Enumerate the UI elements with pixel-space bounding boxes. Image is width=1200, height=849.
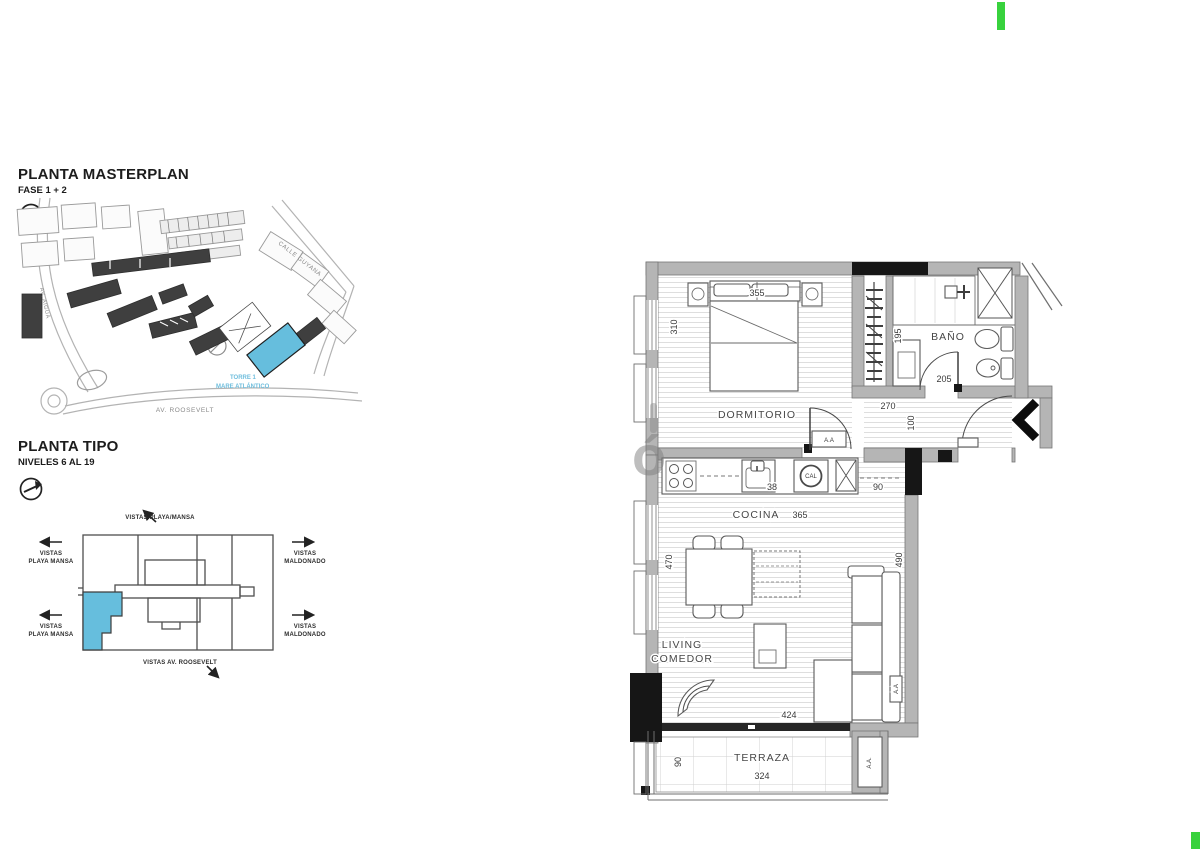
dim-bedroom-width: 355 bbox=[749, 288, 764, 298]
label-terrace: TERRAZA bbox=[734, 752, 790, 764]
terrace-slider bbox=[662, 723, 850, 731]
dim-living-left: 470 bbox=[664, 554, 674, 569]
masterplan-title: PLANTA MASTERPLAN bbox=[18, 166, 189, 183]
masterplan-map: CALLE GUYANA AV. AIGUÁ AV. ROOSEVELT TOR… bbox=[10, 196, 370, 428]
label-living-2: COMEDOR bbox=[651, 653, 713, 665]
view-label-left1a: VISTAS bbox=[40, 551, 62, 557]
closet bbox=[865, 282, 883, 382]
north-compass-icon-2 bbox=[18, 476, 44, 502]
keyplan-diagram: VISTAS PLAYA/MANSA VISTAS PLAYA MANSA VI… bbox=[10, 500, 380, 690]
dim-closet: 195 bbox=[893, 328, 903, 343]
ac-tag-bedroom: A.A bbox=[824, 438, 834, 444]
view-label-right2a: VISTAS bbox=[294, 624, 316, 630]
dim-living-right: 490 bbox=[894, 552, 904, 567]
tower-label-line2: MARE ATLÁNTICO bbox=[216, 383, 270, 390]
dim-bedroom-depth: 310 bbox=[669, 319, 679, 334]
green-marker-top bbox=[997, 2, 1005, 30]
view-label-left2b: PLAYA MANSA bbox=[29, 632, 74, 638]
ac-tag-sofa: A.A bbox=[894, 684, 900, 694]
shower bbox=[893, 276, 975, 325]
tower-label-line1: TORRE 1 bbox=[230, 375, 257, 381]
dim-terrace-width: 324 bbox=[754, 771, 769, 781]
dim-kitchen-length: 365 bbox=[792, 510, 807, 520]
floorplan-drawing: A.A CAL bbox=[560, 245, 1080, 815]
entry-arrow-icon bbox=[1018, 402, 1036, 438]
masterplan-phase: FASE 1 + 2 bbox=[18, 185, 67, 196]
street-label-roosevelt: AV. ROOSEVELT bbox=[156, 407, 214, 414]
label-living-1: LIVING bbox=[662, 639, 702, 651]
view-label-left2a: VISTAS bbox=[40, 624, 62, 630]
dim-living-width: 424 bbox=[781, 710, 796, 720]
view-label-top: VISTAS PLAYA/MANSA bbox=[125, 515, 195, 521]
view-label-bottom: VISTAS AV. ROOSEVELT bbox=[143, 660, 217, 666]
view-label-right2b: MALDONADO bbox=[284, 632, 326, 638]
dim-bathroom-width: 205 bbox=[936, 374, 951, 384]
ac-tag-terrace: A.A. bbox=[867, 757, 873, 769]
label-kitchen: COCINA bbox=[733, 509, 780, 521]
green-marker-bottom bbox=[1191, 832, 1200, 849]
heater-label: CAL bbox=[805, 474, 817, 480]
dim-sink: 38 bbox=[767, 482, 777, 492]
view-label-right1b: MALDONADO bbox=[284, 559, 326, 565]
label-bedroom: DORMITORIO bbox=[718, 409, 796, 421]
keyplan-levels: NIVELES 6 AL 19 bbox=[18, 457, 95, 468]
view-label-right1a: VISTAS bbox=[294, 551, 316, 557]
dim-hall-width: 270 bbox=[880, 401, 895, 411]
duct-shaft bbox=[978, 268, 1012, 318]
label-bathroom: BAÑO bbox=[931, 330, 965, 343]
dim-terrace-depth: 90 bbox=[673, 757, 683, 767]
dim-kitchen-pass: 90 bbox=[873, 482, 883, 492]
view-label-left1b: PLAYA MANSA bbox=[29, 559, 74, 565]
keyplan-highlighted-unit bbox=[83, 592, 122, 650]
dim-hall-depth: 100 bbox=[906, 415, 916, 430]
keyplan-title: PLANTA TIPO bbox=[18, 438, 119, 455]
watermark-glyph: ó bbox=[632, 428, 666, 484]
keyplan-view-arrows bbox=[41, 511, 313, 677]
floorplan-sheet: PLANTA MASTERPLAN FASE 1 + 2 bbox=[0, 0, 1200, 849]
terrace-ac-unit: A.A. bbox=[858, 737, 882, 787]
